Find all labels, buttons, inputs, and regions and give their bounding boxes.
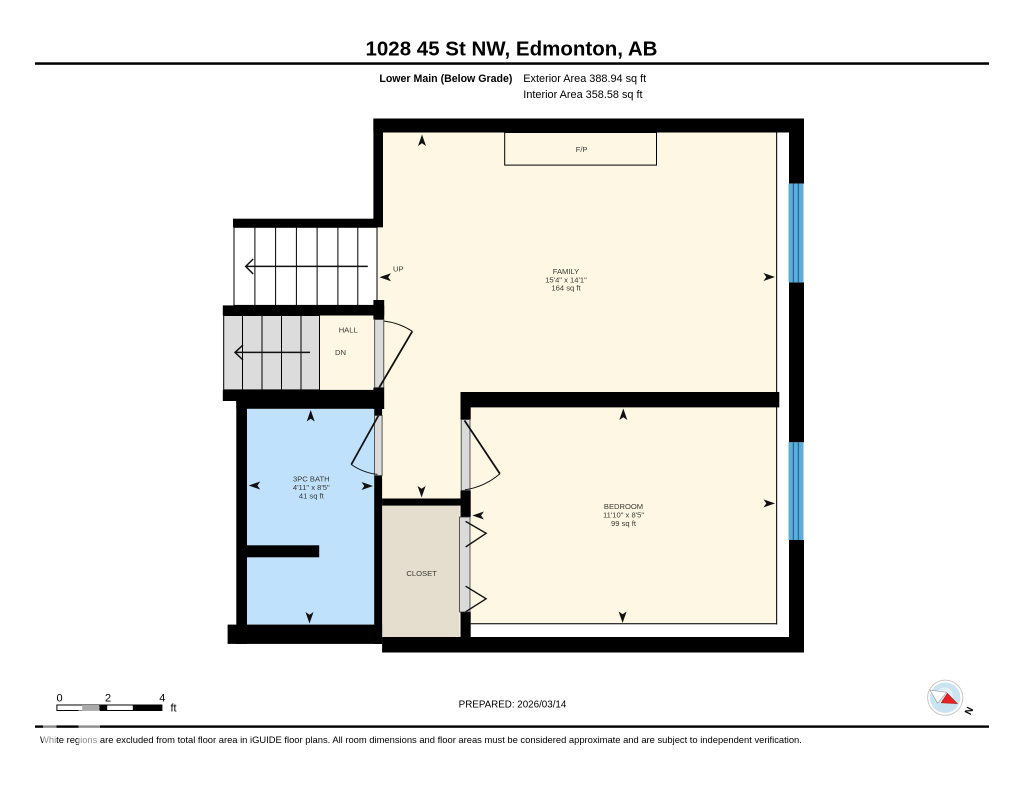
svg-text:White regions are excluded fro: White regions are excluded from total fl… xyxy=(40,734,802,745)
svg-text:BEDROOM: BEDROOM xyxy=(604,502,643,511)
svg-text:164 sq ft: 164 sq ft xyxy=(551,284,581,293)
svg-text:0: 0 xyxy=(56,692,62,704)
svg-text:1028 45 St NW, Edmonton, AB: 1028 45 St NW, Edmonton, AB xyxy=(366,37,658,60)
svg-text:F/P: F/P xyxy=(576,145,588,154)
svg-text:CLOSET: CLOSET xyxy=(406,569,437,578)
svg-text:11'10" x 8'5": 11'10" x 8'5" xyxy=(603,511,644,520)
svg-text:Lower Main (Below Grade): Lower Main (Below Grade) xyxy=(379,73,512,85)
svg-text:99 sq ft: 99 sq ft xyxy=(611,519,637,528)
svg-text:4: 4 xyxy=(159,692,165,704)
svg-text:Interior Area 358.58 sq ft: Interior Area 358.58 sq ft xyxy=(523,89,642,101)
svg-text:PREPARED: 2026/03/14: PREPARED: 2026/03/14 xyxy=(459,700,567,711)
svg-text:DN: DN xyxy=(335,348,346,357)
svg-text:UP: UP xyxy=(393,264,404,273)
svg-text:HALL: HALL xyxy=(339,325,358,334)
svg-text:Exterior Area 388.94 sq ft: Exterior Area 388.94 sq ft xyxy=(523,73,646,85)
svg-text:ft: ft xyxy=(171,703,177,715)
svg-text:41 sq ft: 41 sq ft xyxy=(299,491,325,500)
svg-text:2: 2 xyxy=(105,692,111,704)
